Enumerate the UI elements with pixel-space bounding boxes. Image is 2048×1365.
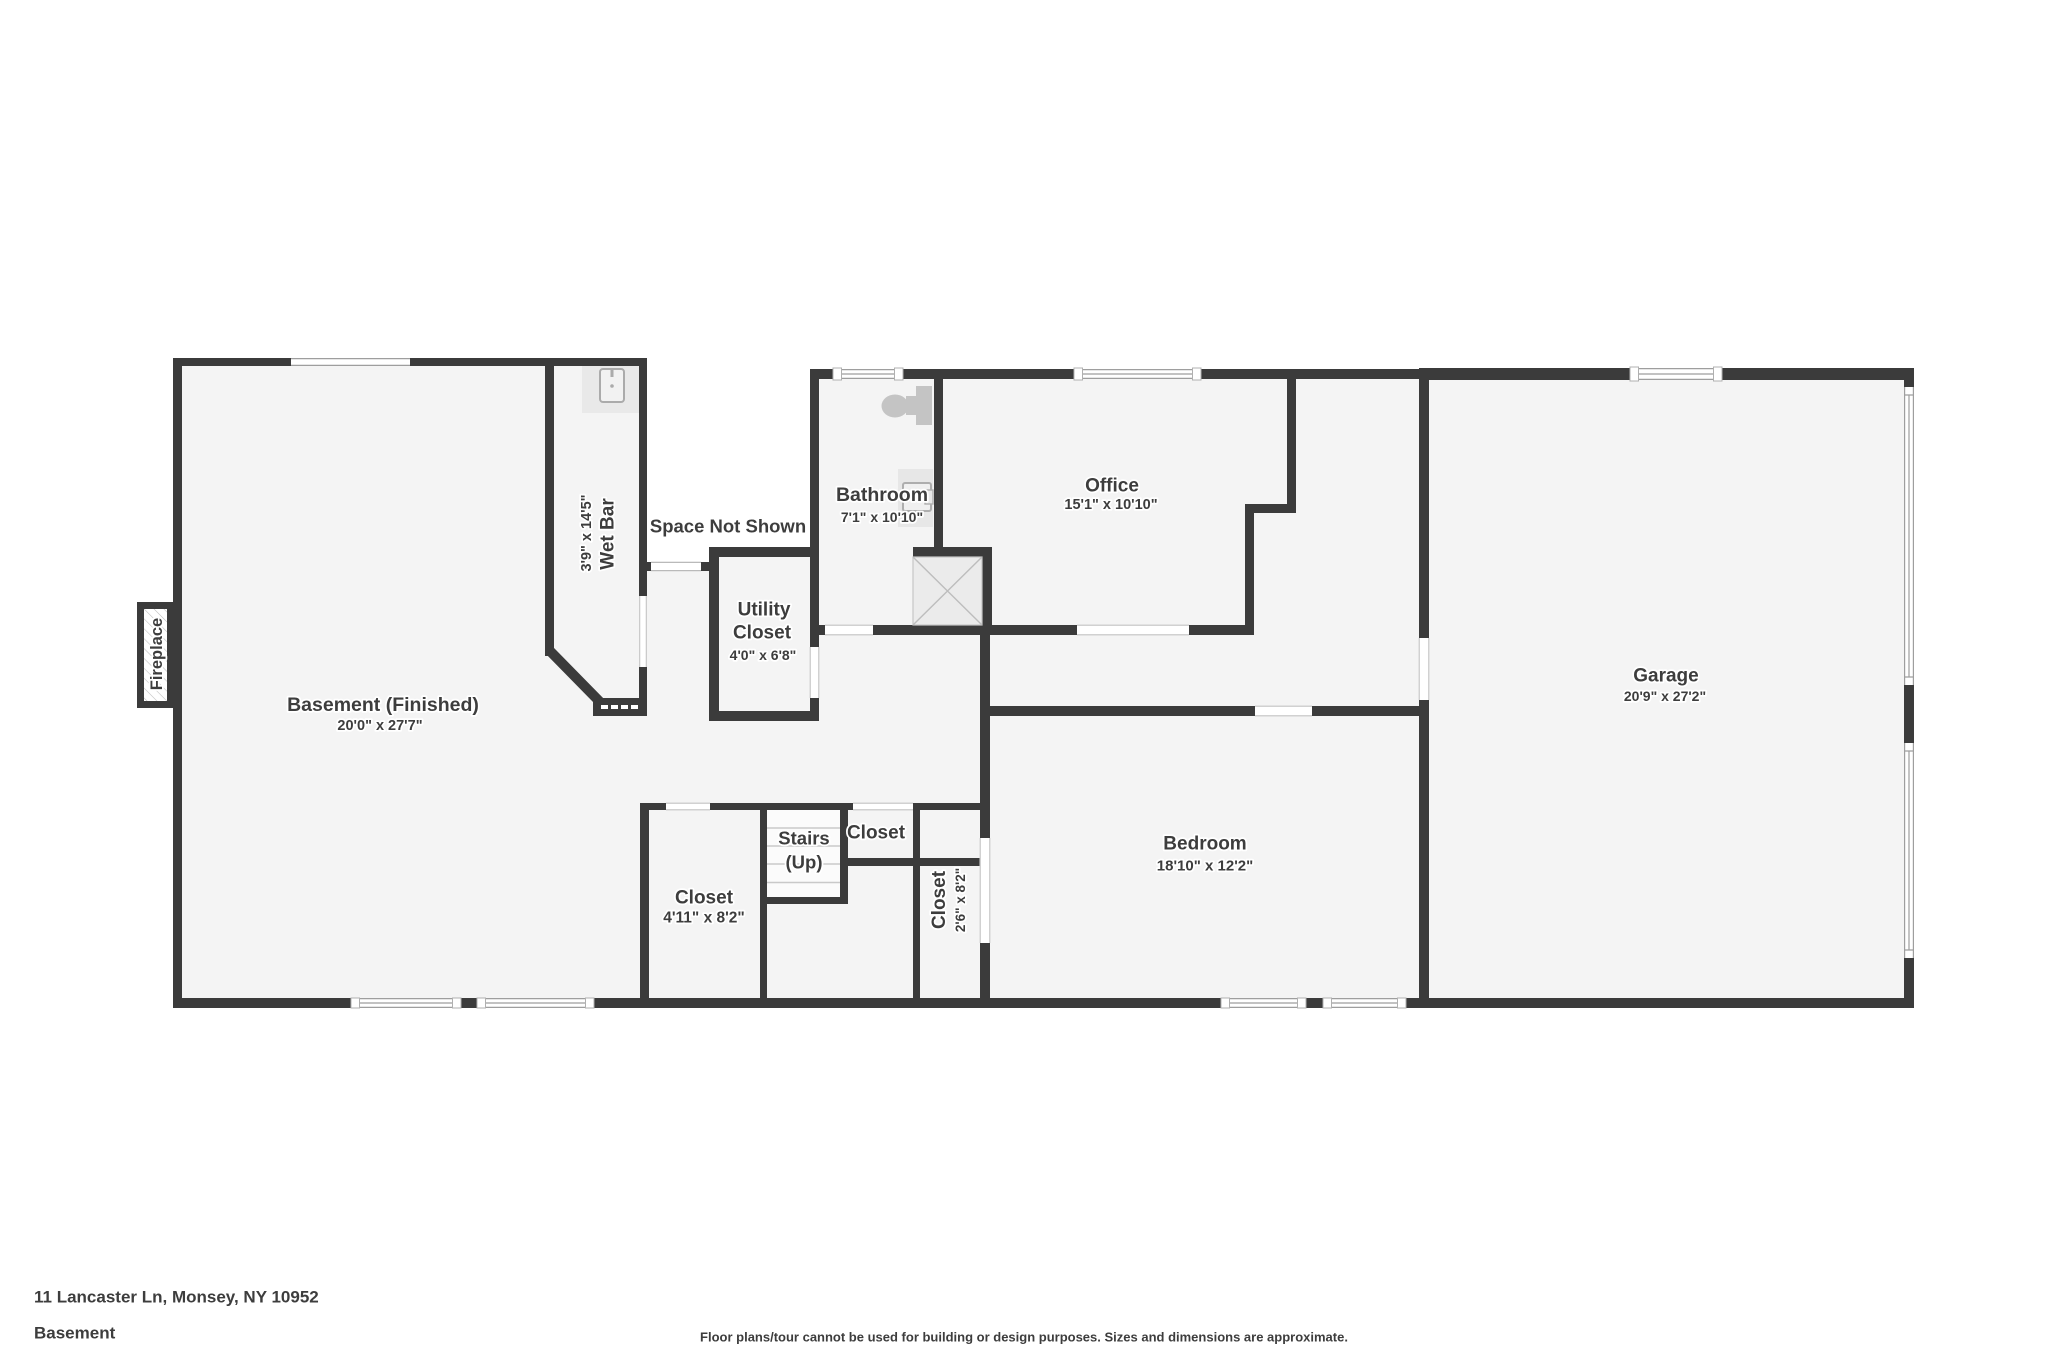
svg-text:Basement: Basement [34,1324,116,1343]
svg-text:Floor plans/tour cannot be use: Floor plans/tour cannot be used for buil… [700,1330,1348,1345]
svg-text:Bathroom: Bathroom [836,484,928,506]
svg-text:Office: Office [1085,476,1139,497]
svg-text:Fireplace: Fireplace [148,618,166,690]
svg-text:Space Not Shown: Space Not Shown [650,516,806,537]
svg-text:Closet: Closet [675,888,734,909]
svg-text:18'10" x 12'2": 18'10" x 12'2" [1157,858,1253,875]
svg-text:3'9" x 14'5": 3'9" x 14'5" [579,494,595,571]
svg-text:Closet: Closet [847,823,906,844]
svg-text:7'1" x 10'10": 7'1" x 10'10" [841,509,923,525]
svg-text:20'0" x 27'7": 20'0" x 27'7" [337,718,422,734]
svg-text:15'1" x 10'10": 15'1" x 10'10" [1064,497,1157,513]
svg-text:Utility: Utility [738,600,791,621]
svg-text:4'11" x 8'2": 4'11" x 8'2" [663,910,745,927]
svg-text:Bedroom: Bedroom [1163,834,1246,855]
svg-text:(Up): (Up) [786,852,823,873]
svg-text:11 Lancaster Ln, Monsey, NY 10: 11 Lancaster Ln, Monsey, NY 10952 [34,1288,319,1307]
svg-text:Wet Bar: Wet Bar [598,498,619,570]
svg-text:Closet: Closet [733,623,792,644]
svg-text:Basement (Finished): Basement (Finished) [287,694,479,716]
svg-text:4'0" x 6'8": 4'0" x 6'8" [730,647,797,663]
svg-text:Closet: Closet [929,870,950,929]
svg-text:Garage: Garage [1633,666,1698,687]
svg-text:2'6" x 8'2": 2'6" x 8'2" [953,868,968,932]
svg-text:Stairs: Stairs [778,828,829,849]
svg-text:20'9" x 27'2": 20'9" x 27'2" [1624,688,1706,704]
